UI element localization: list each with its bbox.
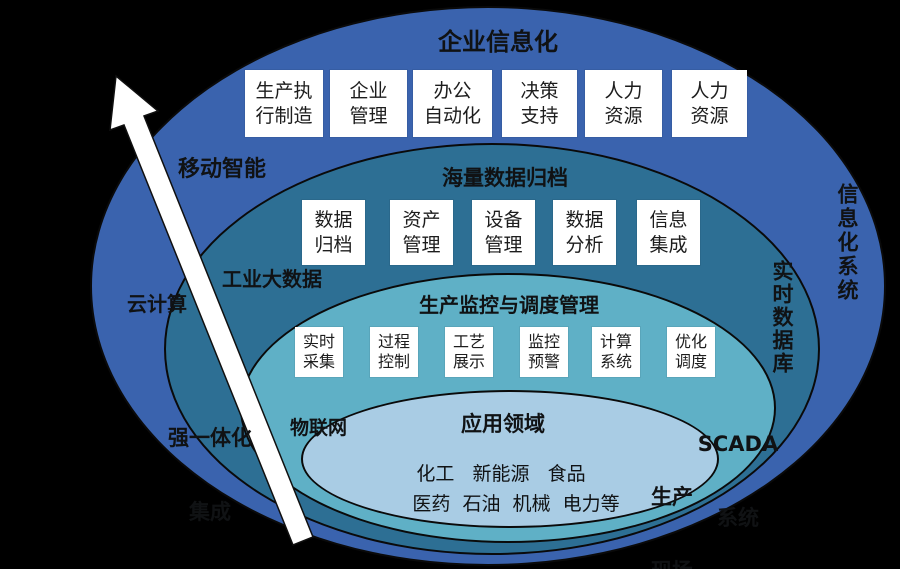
box-mes: 生产执行制造 — [245, 70, 323, 137]
title-enterprise-informatization: 企业信息化 — [378, 22, 618, 57]
box-optimized-scheduling: 优化调度 — [667, 327, 715, 377]
title-production-monitoring: 生产监控与调度管理 — [359, 289, 659, 318]
box-asset-management: 资产管理 — [390, 200, 453, 265]
label-realtime-database: 实时数据库 — [771, 260, 792, 375]
box-process-control: 过程控制 — [370, 327, 418, 377]
enterprise-informatization-diagram: 企业信息化 海量数据归档 生产监控与调度管理 应用领域 生产执行制造 企业管理 … — [0, 0, 900, 569]
label-strong-integration: 强一体化 集成 — [160, 376, 260, 569]
label-cloud-computing: 云计算 — [127, 288, 187, 317]
box-realtime-acquisition: 实时采集 — [295, 327, 343, 377]
box-data-analysis: 数据分析 — [553, 200, 616, 265]
label-mobile-intelligence: 移动智能 — [178, 151, 266, 183]
box-equipment-management: 设备管理 — [472, 200, 535, 265]
title-application-domain: 应用领域 — [403, 408, 603, 438]
box-process-display: 工艺展示 — [445, 327, 493, 377]
box-data-archive: 数据归档 — [302, 200, 365, 265]
box-information-integration: 信息集成 — [637, 200, 700, 265]
label-iot: 物联网 — [290, 413, 347, 440]
box-enterprise-management: 企业管理 — [330, 70, 407, 137]
box-computing-system: 计算系统 — [592, 327, 640, 377]
box-human-resources-1: 人力资源 — [585, 70, 662, 137]
box-monitoring-alert: 监控预警 — [520, 327, 568, 377]
industries-line-1: 化工 新能源 食品 — [351, 459, 651, 486]
box-office-automation: 办公自动化 — [413, 70, 492, 137]
box-decision-support: 决策支持 — [502, 70, 577, 137]
label-industrial-bigdata: 工业大数据 — [222, 263, 322, 292]
industries-line-2: 医药 石油 机械 电力等 — [366, 489, 666, 516]
label-informatization-system: 信息化系统 — [836, 183, 857, 303]
box-human-resources-2: 人力资源 — [672, 70, 747, 137]
title-mass-data-archive: 海量数据归档 — [385, 162, 625, 192]
